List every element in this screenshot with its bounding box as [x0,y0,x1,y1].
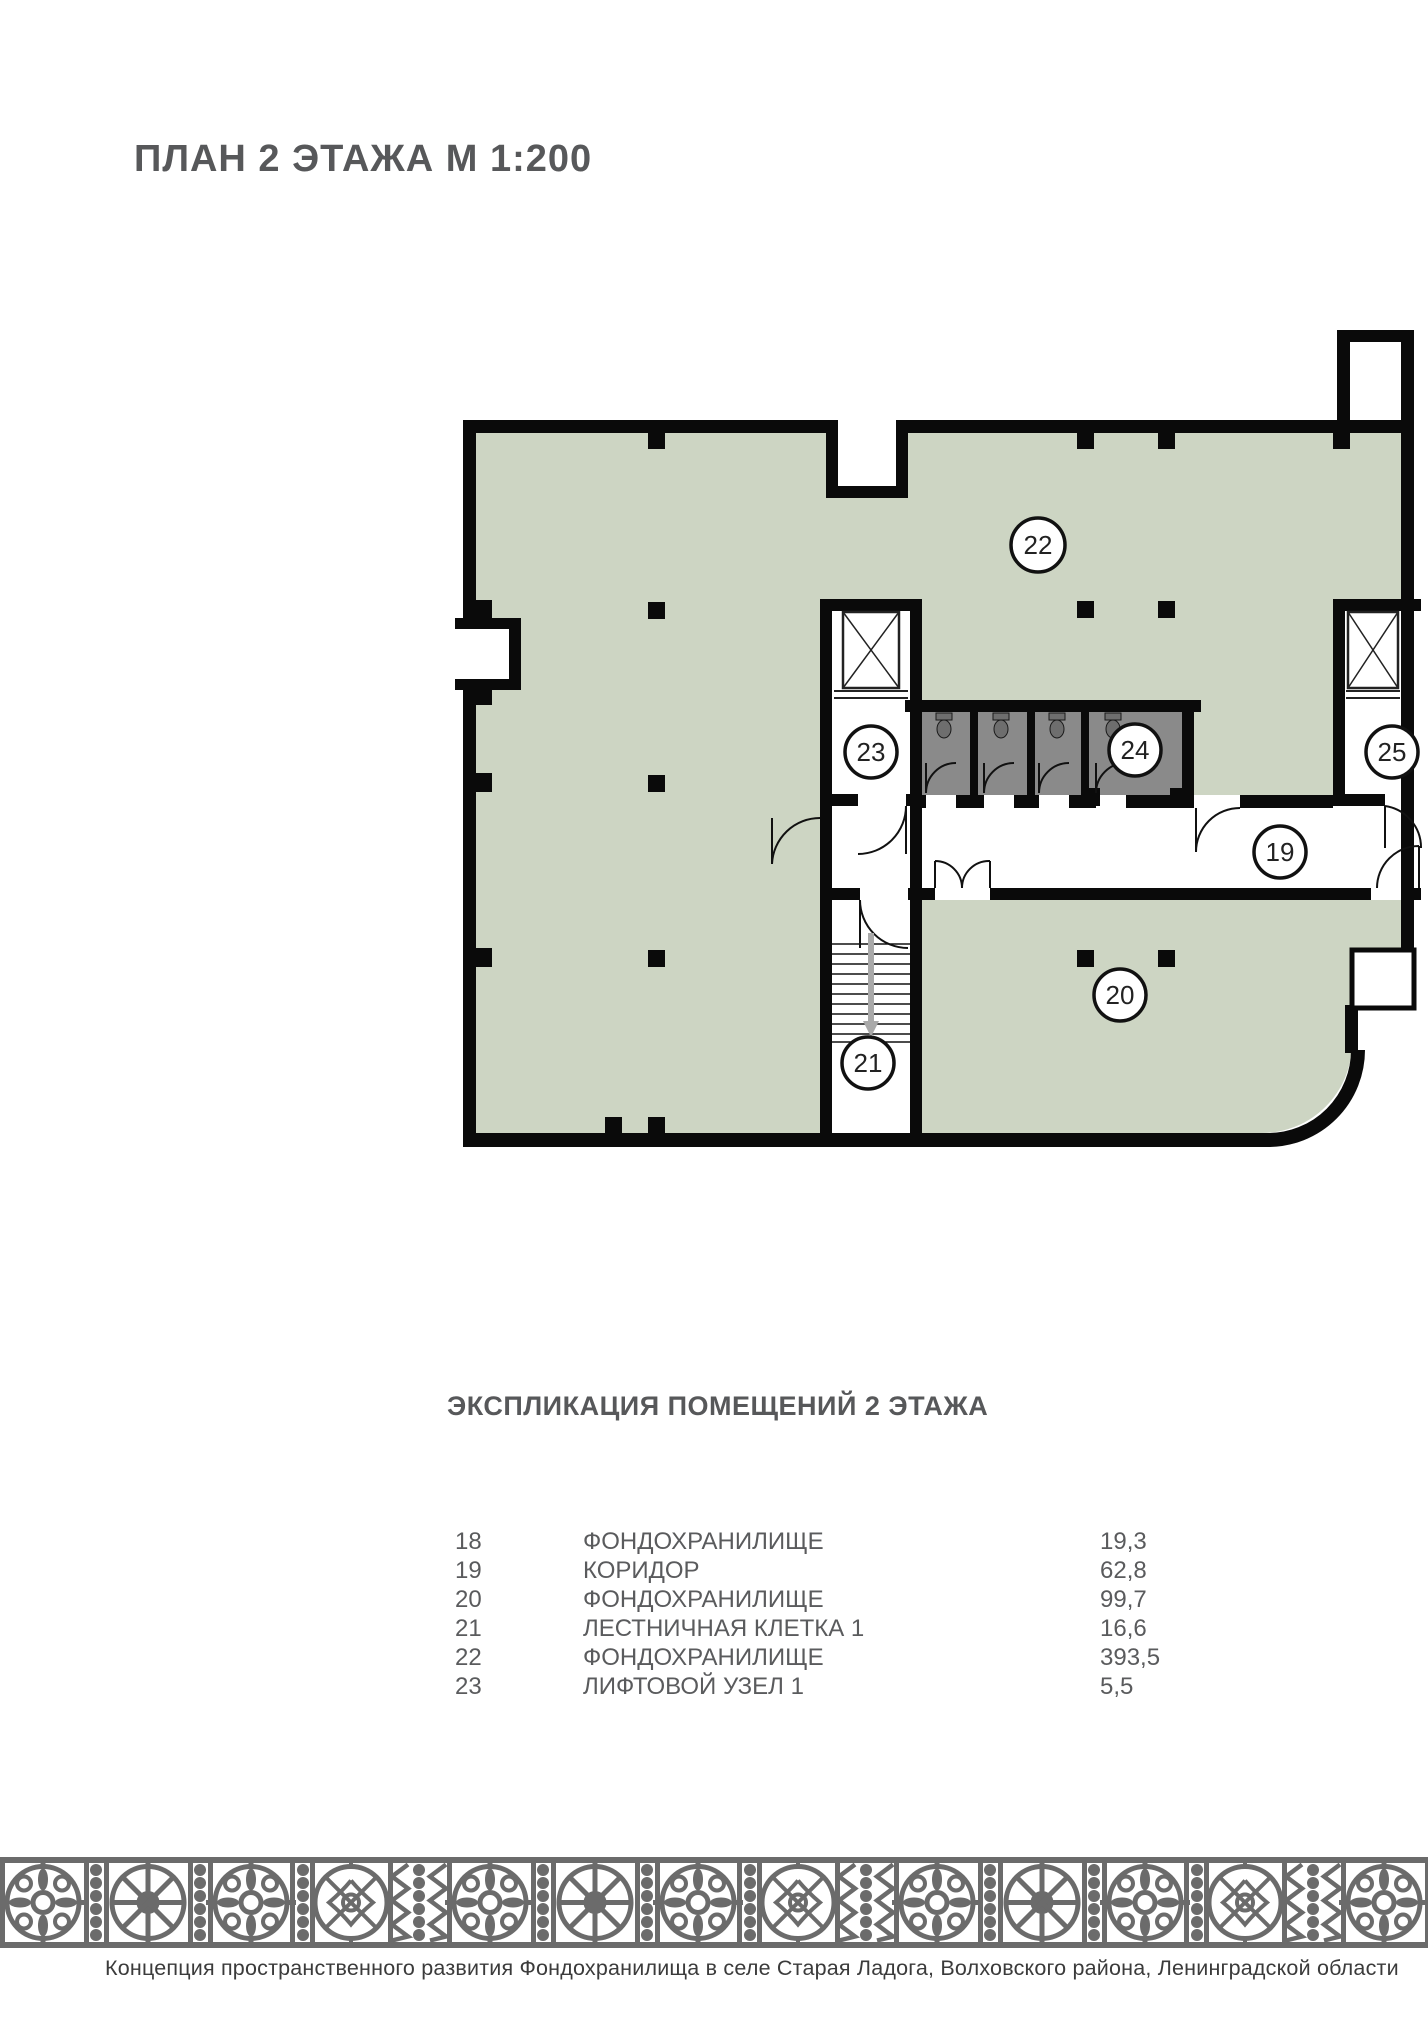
room-number: 19 [455,1556,583,1585]
svg-text:21: 21 [854,1048,883,1078]
roof-shaft-protrusion [1337,330,1414,422]
room-number: 20 [455,1585,583,1614]
toilet-icon [993,713,1009,738]
svg-text:22: 22 [1024,530,1053,560]
table-row: 23 ЛИФТОВОЙ УЗЕЛ 1 5,5 [455,1672,1295,1701]
svg-text:25: 25 [1378,737,1407,767]
svg-text:24: 24 [1121,735,1150,765]
room-number: 23 [455,1672,583,1701]
shaft-box-room20 [1352,950,1414,1008]
footer-caption: Концепция пространственного развития Фон… [105,1956,1399,1981]
room-label-20: 20 [1094,969,1146,1021]
room-area: 19,3 [1100,1527,1260,1556]
room-label-24: 24 [1109,724,1161,776]
room-area: 62,8 [1100,1556,1260,1585]
explication-title: ЭКСПЛИКАЦИЯ ПОМЕЩЕНИЙ 2 ЭТАЖА [447,1391,988,1422]
table-row: 19 КОРИДОР 62,8 [455,1556,1295,1585]
decorative-ornament-band [0,1857,1428,1948]
room-name: ЛИФТОВОЙ УЗЕЛ 1 [583,1672,1100,1701]
svg-text:23: 23 [857,737,886,767]
room-name: ФОНДОХРАНИЛИЩЕ [583,1527,1100,1556]
toilet-icon [1049,713,1065,738]
room-label-22: 22 [1011,518,1065,572]
room-area: 16,6 [1100,1614,1260,1643]
room-number: 18 [455,1527,583,1556]
room-area: 99,7 [1100,1585,1260,1614]
room-label-25: 25 [1366,726,1418,778]
room-name: ФОНДОХРАНИЛИЩЕ [583,1585,1100,1614]
room-label-21: 21 [842,1037,894,1089]
elevator-car-25 [1346,612,1400,699]
table-row: 21 ЛЕСТНИЧНАЯ КЛЕТКА 1 16,6 [455,1614,1295,1643]
room-label-19: 19 [1254,826,1306,878]
explication-table: 18 ФОНДОХРАНИЛИЩЕ 19,3 19 КОРИДОР 62,8 2… [455,1527,1295,1701]
room-area: 393,5 [1100,1643,1260,1672]
room-name: КОРИДОР [583,1556,1100,1585]
room-number: 21 [455,1614,583,1643]
floor-plan-drawing: 22 23 24 25 19 20 21 [0,0,1428,1250]
room-name: ЛЕСТНИЧНАЯ КЛЕТКА 1 [583,1614,1100,1643]
elevator-car-23 [834,612,908,699]
svg-text:20: 20 [1106,980,1135,1010]
sheet-plan-2-floor: ПЛАН 2 ЭТАЖА М 1:200 [0,0,1428,2018]
corner-wall-link [1345,1005,1358,1053]
table-row: 22 ФОНДОХРАНИЛИЩЕ 393,5 [455,1643,1295,1672]
room-label-23: 23 [845,726,897,778]
room-number: 22 [455,1643,583,1672]
table-row: 20 ФОНДОХРАНИЛИЩЕ 99,7 [455,1585,1295,1614]
toilet-icon [936,713,952,738]
table-row: 18 ФОНДОХРАНИЛИЩЕ 19,3 [455,1527,1295,1556]
svg-text:19: 19 [1266,837,1295,867]
stair-stringer [868,933,874,1023]
room-name: ФОНДОХРАНИЛИЩЕ [583,1643,1100,1672]
room-area: 5,5 [1100,1672,1260,1701]
